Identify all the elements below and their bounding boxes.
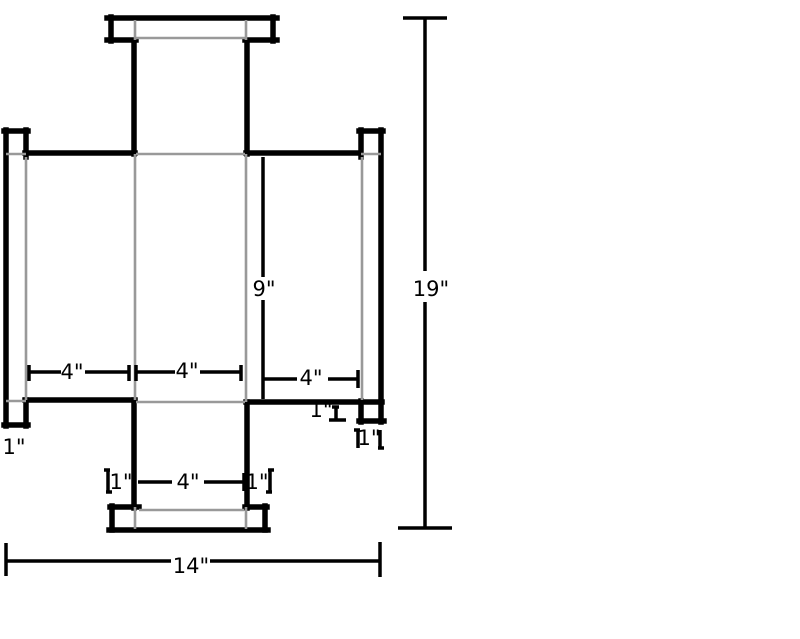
dim-label-right-flange-width: 1" bbox=[357, 426, 380, 450]
dim-label-bottom-arm-width: 4" bbox=[176, 470, 199, 494]
dim-label-center-width: 4" bbox=[175, 359, 198, 383]
dim-label-overall-width: 14" bbox=[173, 554, 209, 578]
dim-label-overall-height: 19" bbox=[413, 277, 449, 301]
dim-label-right-flange-tab: 1" bbox=[309, 398, 332, 422]
drawing-background bbox=[0, 0, 800, 639]
dim-label-body-height: 9" bbox=[252, 277, 275, 301]
dim-label-left-flange-width: 1" bbox=[2, 435, 25, 459]
cross-flat-pattern-drawing: 19"14"9"4"4"4"4"1"1"1"1"1" bbox=[0, 0, 800, 639]
drawing-page: 19"14"9"4"4"4"4"1"1"1"1"1" bbox=[0, 0, 800, 639]
dim-label-bottom-right-tab: 1" bbox=[245, 470, 268, 494]
dim-label-left-arm-length: 4" bbox=[60, 360, 83, 384]
dim-label-right-arm-length: 4" bbox=[299, 366, 322, 390]
dim-label-bottom-left-tab: 1" bbox=[109, 470, 132, 494]
